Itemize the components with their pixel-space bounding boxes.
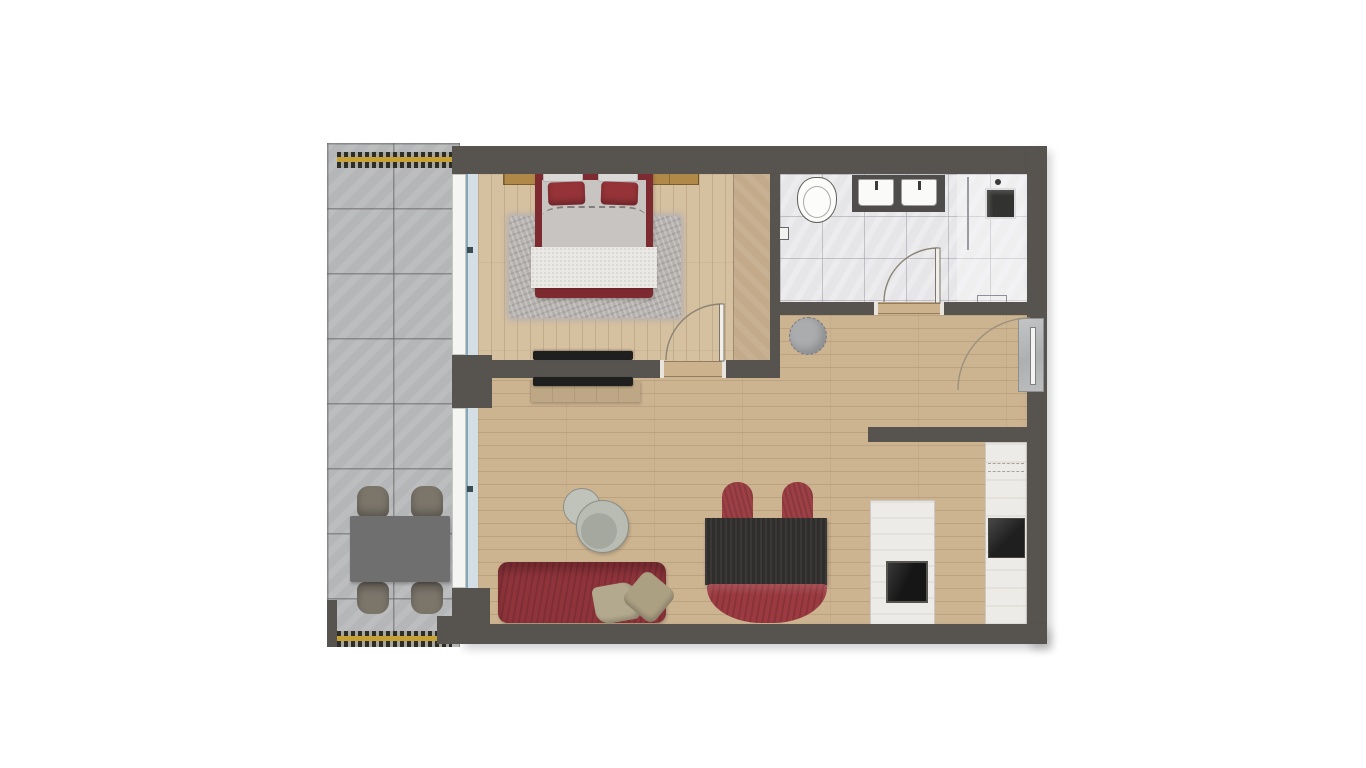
- faucet: [875, 181, 878, 190]
- wall-balcony-stub: [327, 600, 337, 647]
- cabinet-seam: [988, 463, 1024, 464]
- toilet-seat: [803, 186, 831, 218]
- hallway-pouf: [789, 317, 827, 355]
- double-bed: [535, 164, 653, 298]
- bedroom-door-threshold: [664, 361, 722, 377]
- cabinet-seam: [988, 471, 1024, 472]
- oven: [988, 518, 1025, 558]
- sink-left: [858, 179, 894, 206]
- door-jamb: [874, 302, 878, 315]
- bathroom-door-threshold: [878, 303, 940, 314]
- kitchen-tall-cabinet: [985, 442, 1027, 627]
- wall-bedroom-bathroom: [770, 174, 780, 364]
- living-tv: [533, 377, 633, 386]
- wardrobe: [733, 174, 770, 364]
- entrance-door: [1018, 318, 1044, 392]
- window-upper: [452, 174, 478, 355]
- window-frame: [452, 174, 466, 355]
- shower-fixture: [985, 188, 1016, 219]
- door-jamb: [722, 360, 726, 378]
- balcony-table: [350, 516, 450, 582]
- dining-table: [705, 518, 827, 585]
- faucet: [918, 181, 921, 190]
- balcony-railing-bottom: [337, 631, 452, 647]
- bedroom-tv: [533, 351, 633, 360]
- shower-glass-partition: [967, 177, 969, 250]
- wall-top: [452, 146, 1047, 174]
- toilet: [797, 177, 837, 223]
- window-latch-icon: [467, 247, 473, 253]
- floor-plan: [0, 0, 1366, 768]
- balcony-chair: [411, 486, 443, 518]
- window-glass: [466, 408, 478, 588]
- door-jamb: [940, 302, 944, 315]
- toilet-paper-holder: [779, 227, 789, 240]
- balcony-chair: [411, 582, 443, 614]
- balcony-chair: [357, 486, 389, 518]
- bed-pillow-right: [601, 181, 639, 205]
- door-jamb: [660, 360, 664, 378]
- kitchen-island: [870, 500, 935, 627]
- window-latch-icon: [467, 486, 473, 492]
- window-frame: [452, 408, 466, 588]
- wall-corner-block: [437, 616, 461, 644]
- coffee-table-shade: [581, 513, 617, 549]
- window-glass: [466, 174, 478, 355]
- dining-chair-2: [782, 482, 813, 522]
- entrance-door-handle: [1030, 327, 1036, 385]
- wall-bathroom-bottom-right: [940, 302, 1027, 315]
- dining-chair-1: [722, 482, 753, 522]
- island-sink: [886, 561, 928, 603]
- balcony-chair: [357, 582, 389, 614]
- bed-pillow-left: [548, 181, 586, 205]
- bed-fold-line: [543, 206, 645, 224]
- coffee-table-large: [576, 500, 629, 553]
- wall-bottom: [460, 624, 1047, 644]
- vanity-counter: [852, 175, 945, 212]
- shower-head: [995, 179, 1001, 185]
- wall-right: [1027, 146, 1047, 644]
- sink-right: [901, 179, 937, 206]
- balcony-railing-top: [337, 152, 452, 168]
- window-lower: [452, 408, 478, 588]
- wall-bedroom-living-left: [478, 360, 664, 378]
- bed-blanket: [531, 247, 657, 288]
- wall-kitchen-stub: [868, 427, 1027, 442]
- wall-bathroom-bottom-left: [770, 302, 878, 315]
